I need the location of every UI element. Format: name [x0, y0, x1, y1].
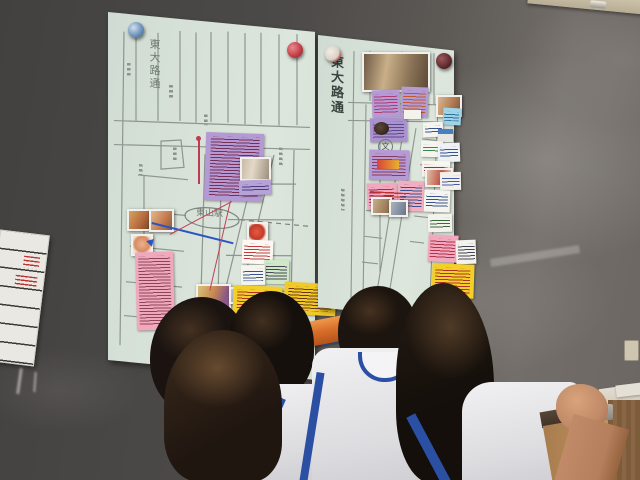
pencil-label	[203, 113, 209, 126]
photo-takoyaki	[374, 122, 389, 135]
student-2-hair	[164, 330, 282, 480]
pencil-label	[278, 146, 284, 169]
small-white-label	[404, 110, 421, 119]
white-note	[456, 240, 477, 265]
magnet-white-red	[325, 46, 341, 62]
left-map-street-name: 東大路通	[146, 38, 162, 92]
pink-note	[427, 234, 458, 263]
pencil-label	[172, 146, 178, 161]
white-note-blue-ink	[440, 172, 461, 190]
small-flag-note	[438, 129, 453, 142]
red-marker-line	[198, 140, 200, 184]
white-note-blue-ink	[438, 143, 461, 163]
purple-note	[372, 90, 401, 118]
red-handwriting	[15, 275, 38, 288]
photo-small	[389, 200, 408, 217]
magnet-blue-marble	[128, 22, 144, 38]
purple-caption-note	[239, 179, 272, 195]
pencil-label	[340, 188, 346, 213]
white-note-blue-ink	[241, 265, 265, 285]
green-note	[264, 260, 289, 284]
pencil-label	[138, 163, 144, 176]
right-map-street-name: 東大路通	[326, 54, 345, 116]
wall-outlet	[624, 340, 639, 361]
photo-shop	[127, 209, 151, 231]
colored-sticker	[377, 160, 399, 169]
pencil-label	[126, 62, 132, 79]
magnet-maroon	[436, 53, 452, 69]
magnet-red	[287, 42, 303, 58]
white-note-green-ink	[428, 214, 452, 232]
red-handwriting	[23, 256, 40, 270]
purple-note	[369, 150, 410, 181]
classroom-photo: 東大路通 東山駅	[0, 0, 640, 480]
photo-shop-interior	[362, 52, 430, 92]
blue-note	[443, 108, 462, 126]
white-note-blue-ink	[424, 190, 451, 213]
photo-students	[240, 157, 271, 181]
red-marker-dot	[196, 136, 201, 141]
pencil-label	[168, 84, 175, 99]
